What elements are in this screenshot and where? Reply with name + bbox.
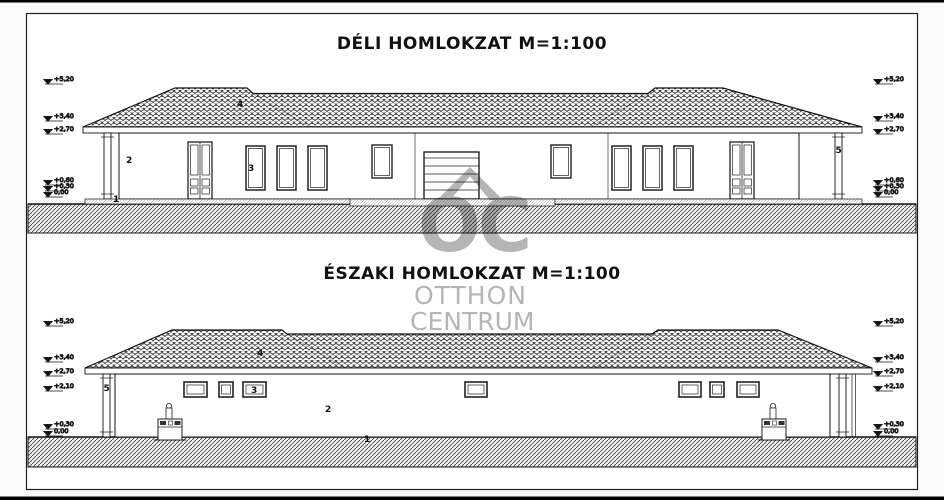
svg-text:0,00: 0,00 (884, 188, 898, 196)
svg-text:+5,20: +5,20 (54, 75, 74, 83)
part-label: 3 (251, 386, 257, 396)
part-label: 5 (836, 146, 842, 156)
tall-window (277, 146, 296, 190)
eave-fascia (83, 127, 862, 133)
small-window (710, 382, 724, 397)
part-label: 5 (104, 384, 110, 394)
part-label: 4 (237, 100, 243, 110)
tall-window (308, 146, 327, 190)
north-elevation-title: ÉSZAKI HOMLOKZAT M=1:100 (0, 264, 944, 284)
glazed-door-left (188, 142, 212, 199)
part-label: 3 (248, 164, 254, 174)
part-label: 2 (325, 405, 331, 415)
roof (85, 330, 872, 368)
small-window (737, 382, 759, 397)
svg-text:+5,20: +5,20 (884, 317, 904, 325)
svg-text:+2,70: +2,70 (884, 125, 904, 133)
svg-text:+3,40: +3,40 (884, 112, 904, 120)
svg-text:0,00: 0,00 (54, 427, 68, 435)
small-window (679, 382, 701, 397)
glazed-door-right (730, 142, 754, 199)
svg-text:+2,70: +2,70 (884, 367, 904, 375)
svg-text:+5,20: +5,20 (884, 75, 904, 83)
svg-text:+3,40: +3,40 (884, 353, 904, 361)
part-label: 4 (257, 349, 263, 359)
part-label: 2 (126, 156, 132, 166)
eave-fascia (85, 368, 872, 374)
svg-text:0,00: 0,00 (884, 427, 898, 435)
entry-apron (350, 199, 555, 206)
elevation-drawings: +5,20 +3,40 +2,70 +0,60 +0,30 0,00 +5,20… (0, 0, 944, 500)
south-elevation-title: DÉLI HOMLOKZAT M=1:100 (0, 34, 944, 54)
svg-text:+2,10: +2,10 (54, 382, 74, 390)
ground-hatch (28, 204, 916, 233)
narrow-window (551, 145, 571, 178)
svg-text:+2,10: +2,10 (884, 382, 904, 390)
tall-window (643, 146, 662, 190)
svg-text:+3,40: +3,40 (54, 112, 74, 120)
architectural-drawing-sheet: +5,20 +3,40 +2,70 +0,60 +0,30 0,00 +5,20… (0, 0, 944, 500)
ground-hatch (28, 437, 916, 467)
tall-window (674, 146, 693, 190)
sheet-top-edge (0, 0, 944, 3)
svg-text:+3,40: +3,40 (54, 353, 74, 361)
svg-text:+2,70: +2,70 (54, 367, 74, 375)
small-window (465, 382, 487, 397)
sectional-door (424, 152, 479, 199)
small-window (184, 382, 207, 397)
north-elevation: +5,20 +3,40 +2,70 +2,10 +0,30 0,00 +5,20… (28, 317, 916, 467)
svg-text:+5,20: +5,20 (54, 317, 74, 325)
sheet-bottom-edge (0, 497, 944, 500)
part-label: 1 (113, 195, 119, 205)
part-label: 1 (364, 435, 370, 445)
small-window (219, 382, 233, 397)
narrow-window (372, 145, 392, 178)
svg-text:0,00: 0,00 (54, 188, 68, 196)
roof (83, 88, 862, 127)
svg-text:+2,70: +2,70 (54, 125, 74, 133)
tall-window (612, 146, 631, 190)
